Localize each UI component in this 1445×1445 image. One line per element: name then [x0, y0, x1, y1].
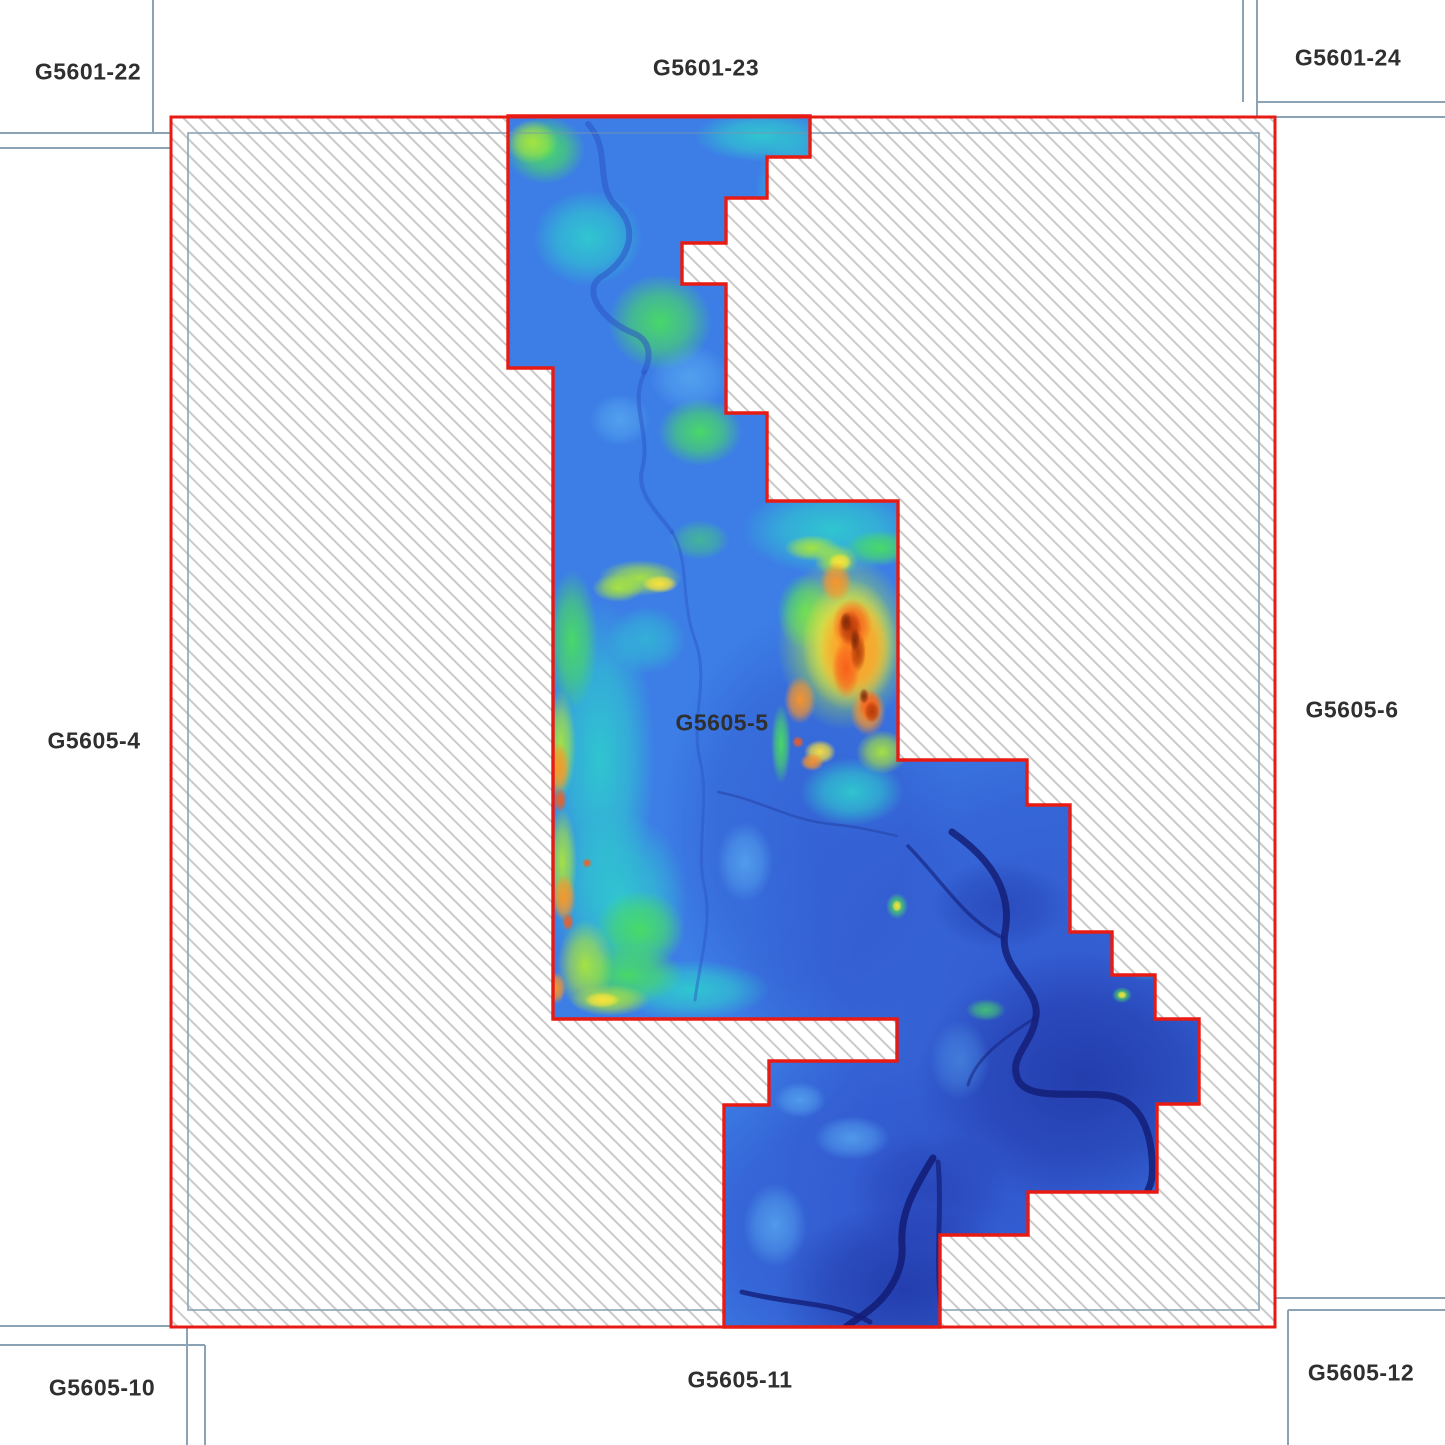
tile-label-g5601-24: G5601-24 [1295, 45, 1401, 72]
tile-label-g5605-4: G5605-4 [47, 728, 140, 755]
tile-label-g5601-22: G5601-22 [35, 59, 141, 86]
tile-label-g5605-5: G5605-5 [675, 710, 768, 737]
tile-label-g5605-12: G5605-12 [1308, 1360, 1414, 1387]
tile-label-g5605-11: G5605-11 [687, 1367, 792, 1394]
tile-label-g5605-6: G5605-6 [1305, 697, 1398, 724]
tile-label-g5605-10: G5605-10 [49, 1375, 155, 1402]
map-canvas[interactable]: G5601-22 G5601-23 G5601-24 G5605-4 G5605… [0, 0, 1445, 1445]
tile-label-g5601-23: G5601-23 [653, 55, 759, 82]
